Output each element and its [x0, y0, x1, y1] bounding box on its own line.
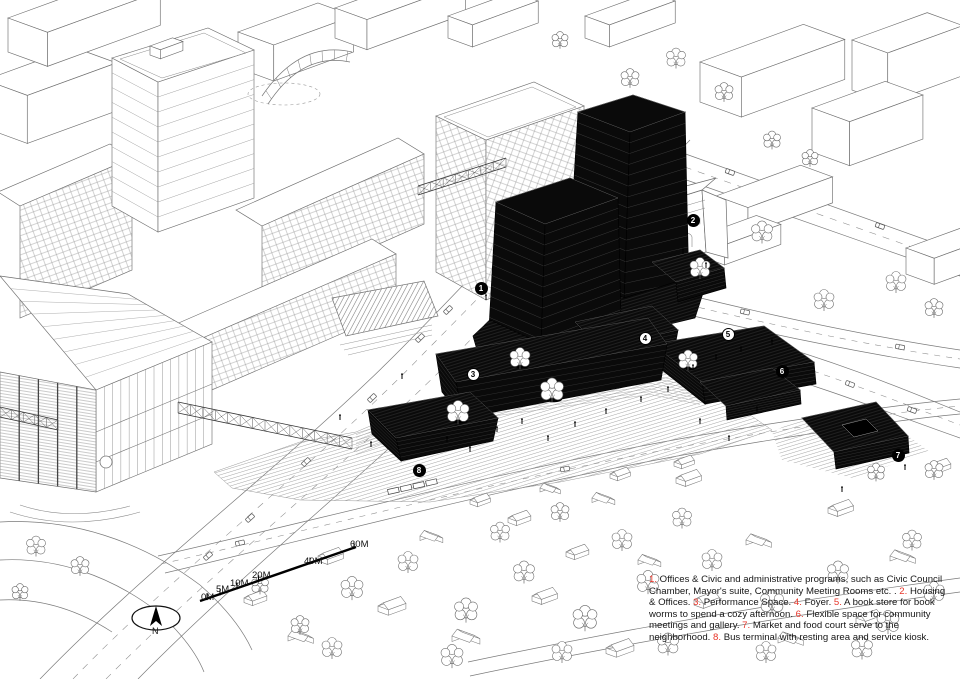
site-drawing — [0, 0, 960, 679]
scalebar-north-layer — [132, 542, 356, 630]
architectural-axonometric-drawing: 12345678 0M5M10M20M40M60M N 1. Offices &… — [0, 0, 960, 679]
